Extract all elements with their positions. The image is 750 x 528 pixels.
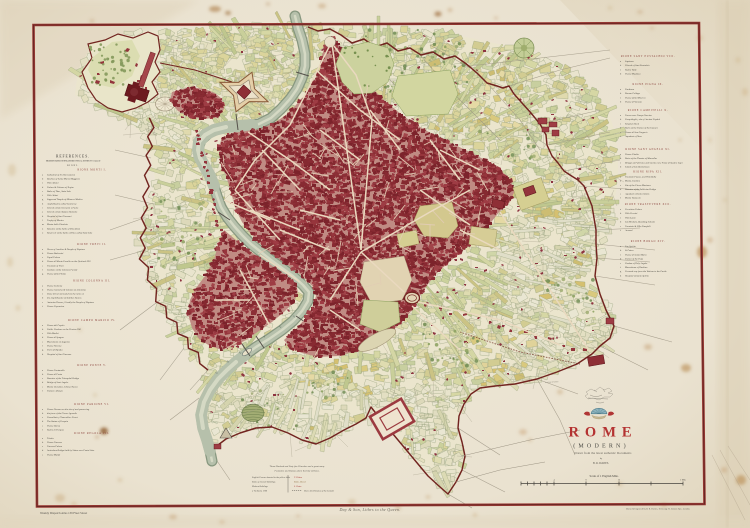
svg-text:Porto di Ripetta: Porto di Ripetta	[46, 349, 63, 352]
svg-text:Villa Altieri: Villa Altieri	[47, 194, 58, 197]
svg-text:Cancellaria, Chancellors Court: Cancellaria, Chancellors Court	[47, 416, 78, 419]
svg-text:m: m	[42, 223, 44, 226]
svg-text:Island of San Bartolomeo: Island of San Bartolomeo	[624, 166, 650, 169]
svg-text:Roman College: Roman College	[624, 92, 640, 95]
svg-text:Cathedral of St John Lateran: Cathedral of St John Lateran	[47, 173, 76, 176]
svg-text:Piazza di San Gregorio: Piazza di San Gregorio	[624, 131, 648, 134]
svg-text:Hospital of San Giovanni: Hospital of San Giovanni	[46, 215, 72, 218]
svg-text:RIONE MONTI I.: RIONE MONTI I.	[77, 169, 106, 172]
svg-text:RIONE TREVI II.: RIONE TREVI II.	[77, 243, 107, 246]
svg-text:Fountain Piazza, and Villa Bel: Fountain Piazza, and Villa Bella	[624, 176, 657, 179]
svg-text:Trophy of Marius: Trophy of Marius	[47, 219, 64, 222]
svg-text:c: c	[42, 332, 43, 335]
svg-text:Monte Aventino: Monte Aventino	[624, 180, 641, 183]
svg-text:Modern Buildings: Modern Buildings	[251, 486, 268, 488]
svg-text:Janiculum Bridge built by Sixt: Janiculum Bridge built by Sixtus now Pon…	[47, 449, 95, 452]
svg-text:Drawn from the latest authenti: Drawn from the latest authentic Document…	[574, 452, 631, 455]
svg-text:The Statue of Pasquin: The Statue of Pasquin	[47, 420, 69, 423]
svg-text:Corsinian Palace: Corsinian Palace	[625, 208, 642, 211]
svg-text:Monte Testaccio: Monte Testaccio	[624, 197, 641, 200]
svg-text:12: 12	[618, 480, 620, 482]
svg-text:Remains of the baths of Diocle: Remains of the baths of Diocletian	[46, 227, 81, 230]
svg-text:Campidoglio, site of Ancient C: Campidoglio, site of Ancient Capitol	[625, 118, 660, 121]
svg-text:the form of the Circus Agonali: the form of the Circus Agonalis	[47, 412, 77, 415]
svg-text:Monte della Giustizia: Monte della Giustizia	[46, 223, 69, 226]
svg-text:English Crowns denoted in the: English Crowns denoted in the yellow lab…	[251, 476, 290, 479]
svg-text:Three Hundred and Sixty five C: Three Hundred and Sixty five Churches an…	[270, 465, 326, 468]
svg-text:e: e	[620, 225, 621, 228]
svg-text:Stone thrown formed from the r: Stone thrown formed from the ruins of	[47, 293, 84, 296]
svg-text:c: c	[620, 184, 621, 187]
svg-text:e: e	[42, 385, 43, 388]
svg-text:Hospital of Santo Spirito: Hospital of Santo Spirito	[624, 274, 650, 277]
svg-text:RIONE COLONNA III.: RIONE COLONNA III.	[73, 280, 111, 283]
svg-text:e: e	[42, 264, 43, 267]
svg-text:Fountain of Trevi: Fountain of Trevi	[46, 264, 64, 267]
svg-text:Piazza di Santa Marta: Piazza di Santa Marta	[624, 253, 647, 256]
svg-text:c: c	[42, 182, 43, 185]
svg-text:RIONE BORGO XIV.: RIONE BORGO XIV.	[631, 240, 665, 243]
svg-text:Teatro di Pompeo: Teatro di Pompeo	[47, 429, 65, 432]
svg-text:c: c	[42, 293, 43, 296]
svg-text:Basilica of Santa Maria Maggio: Basilica of Santa Maria Maggiore	[47, 178, 80, 181]
svg-text:Piazza Mattei: Piazza Mattei	[46, 453, 61, 456]
svg-text:Mausoleum of Hadrian: Mausoleum of Hadrian	[624, 266, 648, 269]
svg-text:Piazza Colonna: Piazza Colonna	[46, 284, 63, 287]
svg-text:e: e	[620, 262, 621, 265]
svg-text:the Amphitheatre of Statilius: the Amphitheatre of Statilius Taurus	[47, 297, 82, 300]
svg-text:Palace of the Pope: Palace of the Pope	[624, 258, 643, 261]
svg-text:Ruins of the Palace of the Cae: Ruins of the Palace of the Caesars	[624, 127, 658, 130]
svg-text:F. Chiese: F. Chiese	[293, 477, 302, 479]
svg-text:B. R. DAVIES.: B. R. DAVIES.	[593, 462, 609, 465]
svg-text:a Via Recta 1748: a Via Recta 1748	[252, 490, 268, 493]
svg-text:Ruins, Brown: Ruins, Brown	[293, 482, 306, 484]
svg-text:c: c	[620, 122, 621, 125]
svg-text:e: e	[42, 301, 43, 304]
svg-text:Piazza della Pilotta: Piazza della Pilotta	[46, 273, 67, 276]
svg-text:c: c	[42, 416, 43, 419]
svg-text:Antonine Houses, Usually the T: Antonine Houses, Usually the Temple of N…	[46, 301, 94, 304]
svg-text:e: e	[620, 131, 621, 134]
svg-text:Public Gardens on the Pincian: Public Gardens on the Pincian Hill	[46, 328, 81, 331]
svg-text:(MODERN): (MODERN)	[573, 443, 629, 450]
svg-text:Palace & Column of Trajan: Palace & Column of Trajan	[46, 186, 75, 189]
svg-text:Church of Sant Eustachio: Church of Sant Eustachio	[625, 64, 650, 67]
svg-text:Aqueduct of Caius Sextus: Aqueduct of Caius Sextus	[624, 192, 649, 195]
svg-text:Site of the Circus Maximus: Site of the Circus Maximus	[625, 184, 651, 187]
svg-text:Weekly Dispatch Atlas 139 Flee: Weekly Dispatch Atlas 139 Fleet Street	[40, 511, 87, 515]
svg-text:RIONE CAMPO MARZIO IV.: RIONE CAMPO MARZIO IV.	[68, 319, 116, 322]
svg-text:Piazza Giudia: Piazza Giudia	[624, 153, 639, 156]
svg-text:RIONE SANT EUSTACHIO VIII.: RIONE SANT EUSTACHIO VIII.	[621, 55, 675, 58]
svg-text:Baths of Titus, Sette Sale: Baths of Titus, Sette Sale	[47, 190, 71, 193]
svg-text:Fountains and Statues adorn th: Fountains and Statues adorn the City of …	[274, 470, 320, 473]
svg-text:Piazza del Popolo: Piazza del Popolo	[46, 324, 65, 327]
svg-text:Teatro Valle: Teatro Valle	[625, 68, 636, 71]
svg-text:Piazza Barberini: Piazza Barberini	[46, 252, 64, 255]
svg-text:RIONE PIGNA IX.: RIONE PIGNA IX.	[633, 83, 664, 86]
svg-text:Piazza di Spagna: Piazza di Spagna	[46, 336, 64, 339]
svg-text:Reservoir of the baths of Titu: Reservoir of the baths of Titus called S…	[46, 231, 92, 234]
svg-text:San Spirito: San Spirito	[625, 245, 636, 248]
svg-text:Villa Corsini: Villa Corsini	[625, 212, 638, 215]
svg-text:Mausoleum of Augustus: Mausoleum of Augustus	[46, 340, 70, 343]
svg-text:RIONI.: RIONI.	[67, 164, 79, 167]
svg-text:Piazza di Venezia: Piazza di Venezia	[624, 101, 643, 104]
svg-text:Ruins of the Theatre of Marcel: Ruins of the Theatre of Marcellus	[624, 157, 657, 160]
svg-text:Piazza di Ponte: Piazza di Ponte	[46, 373, 62, 376]
svg-text:Piazza Navona on the site of a: Piazza Navona on the site of and preserv…	[46, 408, 90, 411]
svg-text:e: e	[42, 190, 43, 193]
svg-text:Garden of Holy Angelo: Garden of Holy Angelo	[625, 262, 648, 265]
svg-text:Ruins of Ancient Buildings: Ruins of Ancient Buildings	[251, 481, 276, 484]
svg-text:c: c	[620, 253, 621, 256]
svg-text:Piazza Fontanella: Piazza Fontanella	[46, 369, 65, 372]
svg-text:c: c	[42, 445, 43, 448]
svg-text:c: c	[620, 216, 621, 219]
svg-text:Church of San Giovanni e Paolo: Church of San Giovanni e Paolo	[47, 207, 79, 210]
svg-text:ROME: ROME	[568, 425, 637, 441]
svg-text:S. Gates: S. Gates	[294, 485, 301, 488]
svg-text:e: e	[42, 453, 43, 456]
svg-text:Aqueduct of Nero: Aqueduct of Nero	[624, 135, 643, 138]
svg-text:Piazza Madama: Piazza Madama	[624, 73, 641, 76]
svg-text:Piazza della Minerva: Piazza della Minerva	[624, 96, 646, 99]
svg-text:Horse of Aurelius & Temple of: Horse of Aurelius & Temple of Neptune	[46, 248, 85, 251]
svg-text:Shews the Distance of the Cast: Shews the Distance of the Castells	[304, 490, 334, 493]
svg-text:Pantheon: Pantheon	[624, 88, 635, 91]
svg-text:Piazza Capranica: Piazza Capranica	[46, 305, 65, 308]
svg-text:e: e	[42, 340, 43, 343]
svg-text:Monte Giordano, Chiesa Nuova: Monte Giordano, Chiesa Nuova	[46, 385, 78, 388]
svg-text:Piazza di Monte Cavallo on the: Piazza di Monte Cavallo on the Quirinal …	[46, 260, 91, 263]
svg-text:Remains of the Sublician Bridg: Remains of the Sublician Bridge	[624, 188, 656, 191]
svg-text:REFERENCES.: REFERENCES.	[56, 155, 90, 159]
svg-text:Piazza Nicosia: Piazza Nicosia	[46, 345, 62, 348]
svg-text:1 Mile: 1 Mile	[680, 480, 686, 482]
svg-text:Hospital of San Giacomo: Hospital of San Giacomo	[46, 353, 72, 356]
svg-text:Amphitheatre called Castrense: Amphitheatre called Castrense	[46, 202, 76, 205]
svg-text:e: e	[42, 424, 43, 427]
svg-text:Piazza Sforza: Piazza Sforza	[46, 424, 61, 427]
svg-text:c: c	[42, 377, 43, 380]
svg-text:Bridge of Sant Angelo: Bridge of Sant Angelo	[47, 381, 69, 384]
svg-text:RIONE PONTE V.: RIONE PONTE V.	[77, 364, 107, 367]
svg-text:Scale of 1 English Mile.: Scale of 1 English Mile.	[589, 474, 618, 478]
svg-text:Supposed Temple of Minerva Med: Supposed Temple of Minerva Medica	[47, 198, 83, 201]
svg-text:Bridges of Fabricius and Cesti: Bridges of Fabricius and Cestius now Pon…	[625, 161, 683, 164]
svg-text:RIONE REGOLA VII.: RIONE REGOLA VII.	[74, 432, 110, 435]
svg-text:Villa Albani: Villa Albani	[47, 182, 59, 185]
svg-text:c: c	[620, 68, 621, 71]
svg-text:San Michele, Boarding Schools: San Michele, Boarding Schools	[625, 221, 655, 224]
svg-text:Remains of the Triumphal Bridg: Remains of the Triumphal Bridge	[46, 377, 79, 380]
svg-text:Drawn & Engraved by B. R. Davi: Drawn & Engraved by B. R. Davies, 16 Geo…	[626, 508, 691, 511]
svg-text:St Peters: St Peters	[625, 249, 634, 252]
svg-text:Arsenal: Arsenal	[624, 229, 633, 232]
svg-text:Piazza Antonina & Column of An: Piazza Antonina & Column of Antoninus	[46, 288, 86, 291]
svg-text:RIONE RIPA XII.: RIONE RIPA XII.	[633, 171, 663, 174]
svg-text:Church of San Stefano Rotondo: Church of San Stefano Rotondo	[47, 211, 78, 214]
svg-text:Villa Medici: Villa Medici	[47, 332, 59, 335]
svg-text:c: c	[620, 96, 621, 99]
svg-text:Farnese Palace: Farnese Palace	[46, 445, 62, 448]
svg-text:Sapienza: Sapienza	[625, 60, 634, 63]
svg-text:MODERN ROME DISTINGUISHED INTO: MODERN ROME DISTINGUISHED INTO 14 DISTRI…	[46, 160, 101, 163]
svg-text:Papal Palace: Papal Palace	[46, 256, 60, 259]
svg-text:Palazzo Altemps: Palazzo Altemps	[46, 390, 63, 393]
svg-text:Tarpeian Rock: Tarpeian Rock	[625, 122, 640, 125]
svg-text:RIONE CAMPITELLI X.: RIONE CAMPITELLI X.	[628, 109, 668, 112]
svg-text:RIONE SANT ANGELO XI.: RIONE SANT ANGELO XI.	[625, 148, 670, 151]
svg-text:RIONE PARIONE VI.: RIONE PARIONE VI.	[74, 403, 109, 406]
svg-text:Trinita: Trinita	[47, 437, 54, 440]
svg-text:Fountain & Villa Pamphili: Fountain & Villa Pamphili	[624, 225, 651, 228]
svg-text:Piazza Farnese: Piazza Farnese	[46, 441, 62, 444]
svg-text:c: c	[620, 161, 621, 164]
svg-text:Gardens of the Colonna Family: Gardens of the Colonna Family	[47, 269, 78, 272]
svg-text:Villa Lante: Villa Lante	[625, 216, 636, 219]
svg-text:e: e	[620, 192, 621, 195]
svg-text:c: c	[42, 256, 43, 259]
svg-text:Forum now Campo Vaccino: Forum now Campo Vaccino	[624, 114, 653, 117]
svg-text:Covered way from the Vatican t: Covered way from the Vatican to the Cast…	[625, 270, 666, 273]
svg-text:RIONE TRASTEVERE XIII.: RIONE TRASTEVERE XIII.	[625, 203, 671, 206]
